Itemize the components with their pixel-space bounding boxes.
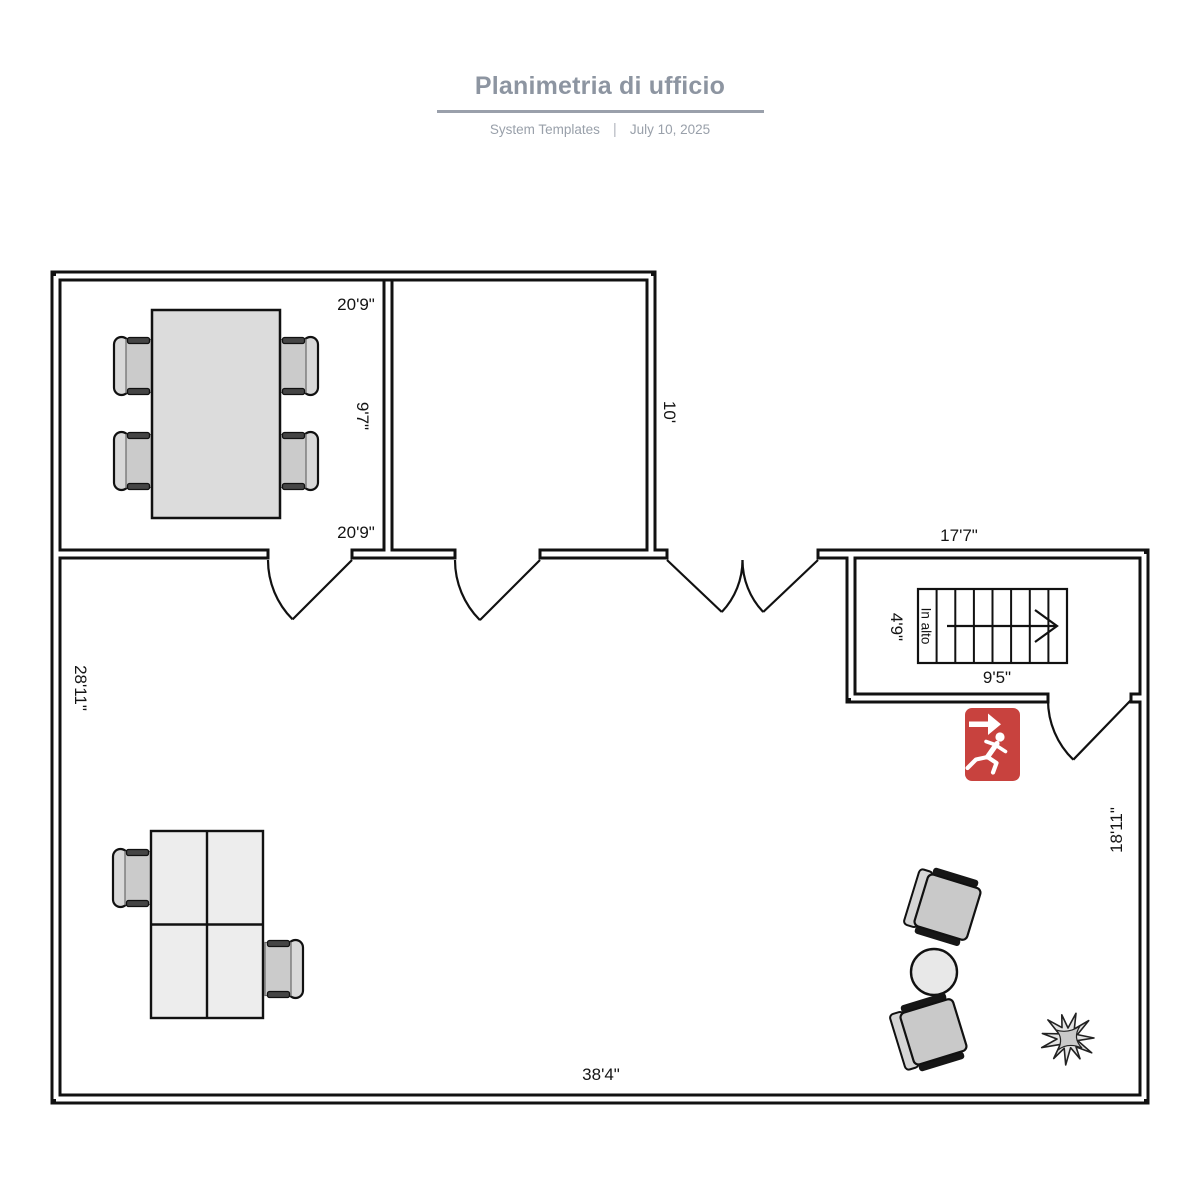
conference-table: [152, 310, 280, 518]
lounge-chair: [902, 863, 984, 948]
office-chair: [280, 432, 318, 490]
floor-plan-page: Planimetria di ufficio System Templates …: [0, 0, 1200, 1200]
office-chair: [113, 849, 151, 907]
dimension-label: 10': [659, 401, 679, 423]
office-chair: [280, 337, 318, 395]
office-chair: [114, 337, 152, 395]
dimension-label: 28'11": [70, 665, 90, 711]
lounge-group: [888, 863, 984, 1076]
lounge-chair: [888, 991, 970, 1076]
office-chair: [265, 940, 303, 998]
round-table: [911, 949, 957, 995]
dimension-label: 4'9": [886, 613, 906, 641]
floor-plan-svg: [0, 0, 1200, 1200]
dimension-label: 9'7": [352, 402, 372, 430]
plant-icon: [1042, 1013, 1094, 1065]
dimension-label: 18'11": [1107, 807, 1127, 853]
dimension-label: 9'5": [983, 668, 1011, 688]
dimension-label: 38'4": [582, 1065, 620, 1085]
dimension-label: 20'9": [337, 295, 375, 315]
floor-plan: 20'9" 9'7" 20'9" 10' 17'7" 4'9" In alto …: [0, 0, 1200, 1200]
staircase: [918, 589, 1067, 663]
conference-group: [114, 310, 318, 518]
double-door-main: [667, 560, 818, 612]
office-chair: [114, 432, 152, 490]
door-room1: [268, 560, 352, 619]
door-stairwell: [1048, 700, 1131, 760]
desk-cluster-group: [113, 831, 303, 1018]
door-room2: [455, 560, 540, 620]
dimension-label: 20'9": [337, 523, 375, 543]
stairs-direction-label: In alto: [919, 608, 934, 645]
dimension-label: 17'7": [940, 526, 978, 546]
emergency-exit-icon: [965, 708, 1020, 781]
